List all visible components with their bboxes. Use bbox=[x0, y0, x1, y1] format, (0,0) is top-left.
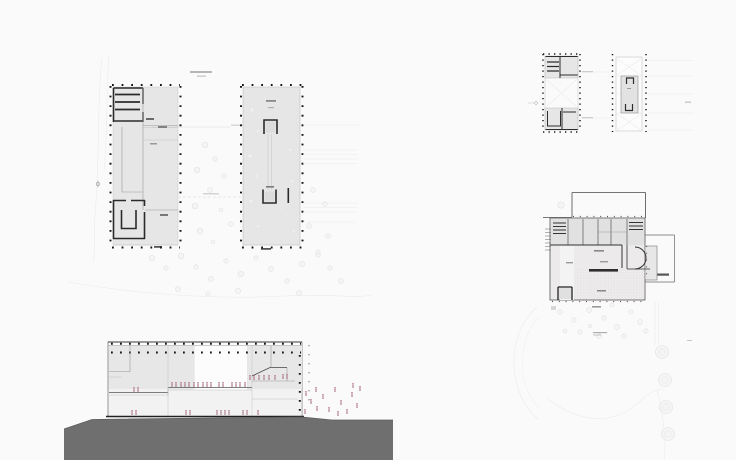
reception-desk bbox=[589, 269, 618, 272]
roadside-trees bbox=[656, 346, 675, 441]
entry-tree bbox=[558, 202, 564, 208]
shear-wall bbox=[288, 188, 290, 203]
building-section bbox=[106, 342, 361, 417]
drawing-canvas bbox=[0, 0, 736, 460]
left-building-plan bbox=[111, 85, 181, 248]
projection-lines bbox=[648, 61, 694, 131]
ground-floor-plan bbox=[96, 71, 360, 296]
hall-roof-core bbox=[621, 76, 638, 113]
upper-right-block bbox=[580, 54, 694, 132]
architectural-drawing-sheet bbox=[0, 0, 736, 460]
section-marker bbox=[535, 102, 538, 105]
projection-lines bbox=[303, 125, 360, 222]
detail-building bbox=[545, 217, 657, 302]
paved-floor-hatch bbox=[575, 268, 645, 300]
upper-left-block bbox=[528, 54, 593, 132]
exhibition-hall-plan bbox=[241, 85, 360, 250]
ground-mass bbox=[64, 417, 393, 460]
plan-title-microtext bbox=[190, 71, 212, 77]
people-outside bbox=[304, 383, 361, 416]
upper-floor-plan bbox=[528, 54, 694, 132]
detail-floor-plan bbox=[543, 193, 692, 441]
